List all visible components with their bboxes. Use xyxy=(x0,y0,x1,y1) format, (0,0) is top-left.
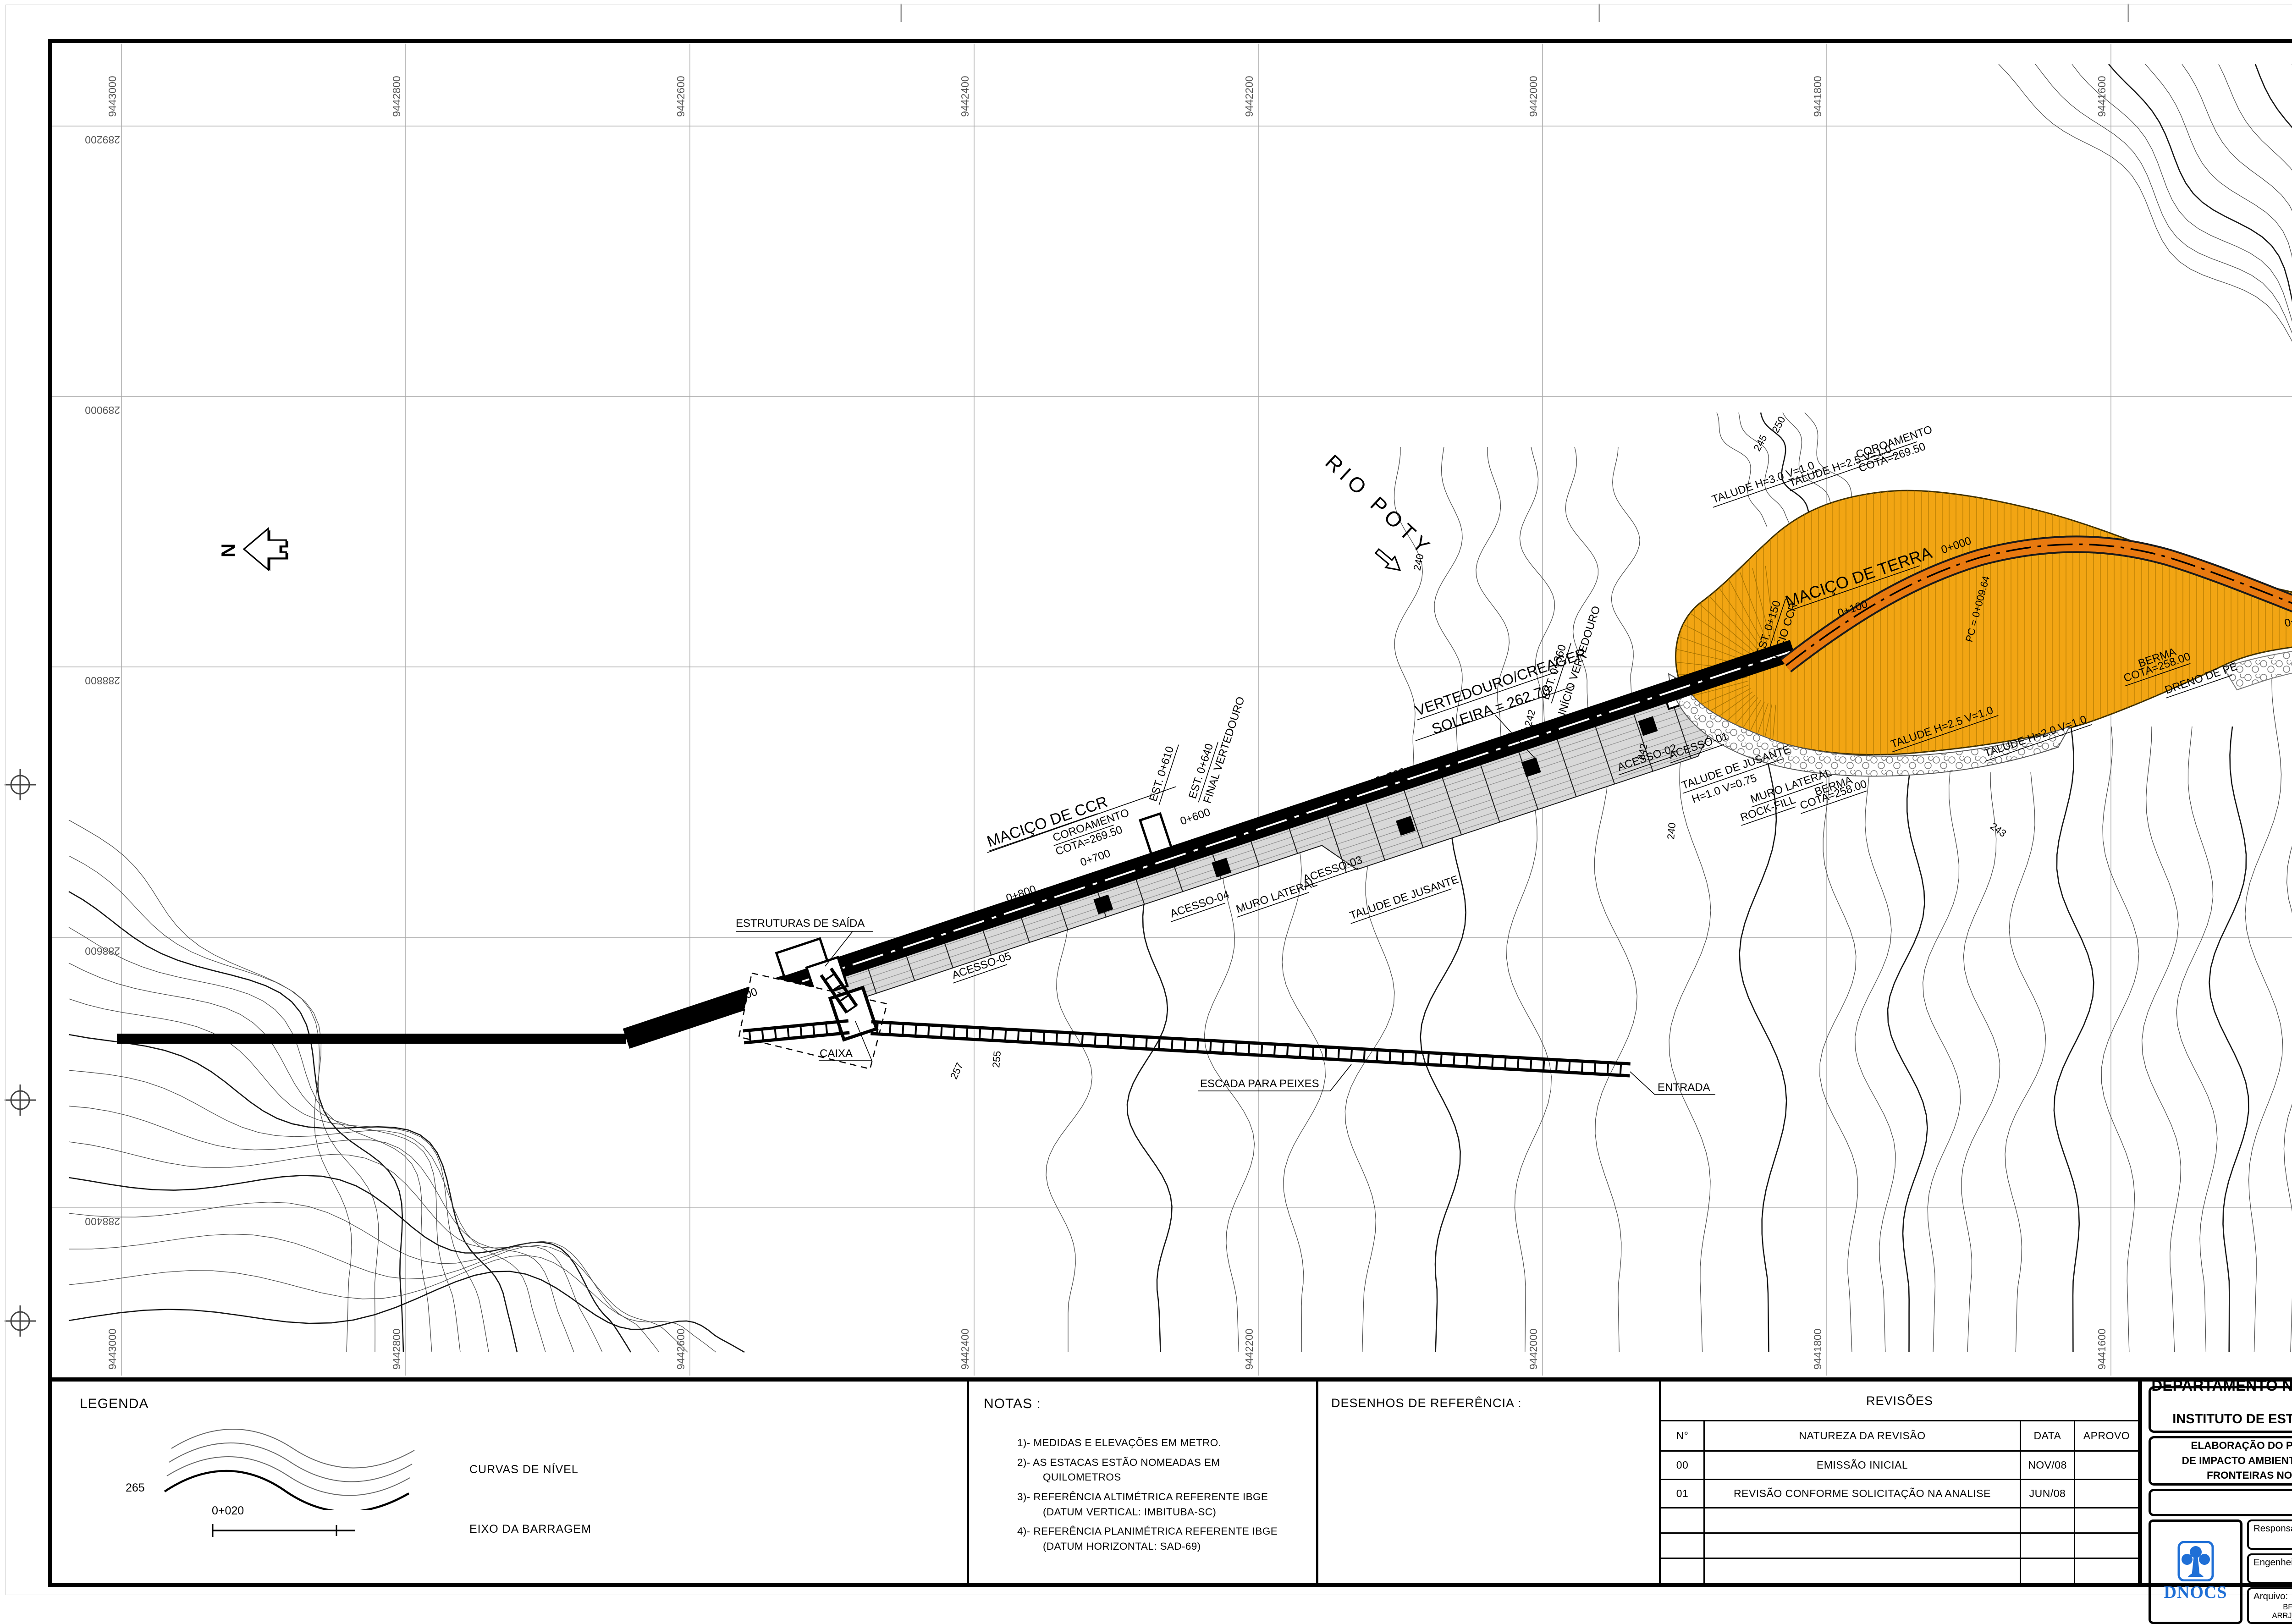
svg-text:ESCADA PARA PEIXES: ESCADA PARA PEIXES xyxy=(1200,1078,1319,1090)
responsible-field: Responsável Técnico: – xyxy=(2247,1519,2292,1550)
north-label: N xyxy=(217,544,239,557)
revision-cell xyxy=(1661,1507,1703,1532)
contour-line xyxy=(69,1070,545,1352)
map-label: 240 xyxy=(1411,553,1426,572)
contour-line xyxy=(1611,447,1640,704)
contour-line xyxy=(69,1272,744,1353)
map-label: ACESSO-03 xyxy=(1300,853,1364,887)
grid-northing-label: 9442800 xyxy=(391,1328,402,1370)
legend-axis-label: EIXO DA BARRAGEM xyxy=(469,1523,591,1536)
axis-symbol xyxy=(204,1521,396,1540)
revision-cell: REVISÃO CONFORME SOLICITAÇÃO NA ANALISE xyxy=(1703,1479,2020,1507)
svg-text:CAIXA: CAIXA xyxy=(820,1047,853,1060)
grid-easting-label: 288400 xyxy=(85,1216,120,1228)
contour-line xyxy=(2245,665,2283,1352)
dnocs-logo-box: DNOCS xyxy=(2149,1519,2242,1624)
contour-line xyxy=(1204,871,1254,1352)
left-fields: Responsável Técnico: – Engenheiro: – Arq… xyxy=(2247,1519,2292,1624)
map-label: ESCADA PARA PEIXES xyxy=(1200,1078,1319,1090)
grid-northing-label: 9442600 xyxy=(675,76,687,117)
contour-line xyxy=(2142,727,2181,1352)
revision-cell xyxy=(2020,1558,2074,1583)
title-block: DEPARTAMENTO NACIONAL DE OBRAS CONTRA AS… xyxy=(2138,1382,2292,1583)
contour-line xyxy=(1394,447,1422,772)
map-label: 255 xyxy=(990,1051,1003,1068)
notes-title: NOTAS : xyxy=(984,1396,1041,1412)
reference-drawings-panel: DESENHOS DE REFERÊNCIA : xyxy=(1316,1382,1659,1583)
flow-arrow-icon xyxy=(1372,545,1404,575)
contour-line xyxy=(1127,896,1172,1352)
contour-line xyxy=(2209,727,2249,1352)
drawing-sheet: { "legend": { "title": "LEGENDA", "conto… xyxy=(0,0,2292,1601)
contour-line xyxy=(1961,772,2000,1352)
contour-line xyxy=(69,856,379,1352)
legend-contour-label: CURVAS DE NÍVEL xyxy=(469,1463,579,1476)
revision-cell xyxy=(2074,1450,2138,1479)
grid-northing-label: 9441600 xyxy=(2096,1328,2108,1370)
contour-line xyxy=(69,927,432,1352)
dnocs-logo-icon xyxy=(2171,1541,2221,1581)
revisions-table: REVISÕES N° NATUREZA DA REVISÃO DATA APR… xyxy=(1659,1382,2138,1583)
grid-northing-label: 9442000 xyxy=(1527,76,1539,117)
axis-centerline xyxy=(752,652,1790,998)
note-item: 1)- MEDIDAS E ELEVAÇÕES EM METRO. xyxy=(1017,1436,1292,1451)
contour-line xyxy=(1282,847,1325,1352)
revision-cell xyxy=(2074,1479,2138,1507)
notes-panel: NOTAS : 1)- MEDIDAS E ELEVAÇÕES EM METRO… xyxy=(967,1382,1316,1583)
revision-cell xyxy=(2020,1507,2074,1532)
bottom-panel-row: LEGENDA 265 CURVAS DE NÍVEL 0+020 EIXO D… xyxy=(48,1377,2292,1587)
revision-cell xyxy=(1661,1532,1703,1558)
map-label: 240 xyxy=(1665,822,1678,840)
map-label: RIO POTY xyxy=(1321,450,1438,561)
legend-contour-value: 265 xyxy=(126,1481,145,1495)
note-item: 3)- REFERÊNCIA ALTIMÉTRICA REFERENTE IBG… xyxy=(1017,1490,1292,1519)
revision-cell xyxy=(2020,1532,2074,1558)
revision-cell: JUN/08 xyxy=(2020,1479,2074,1507)
svg-text:240: 240 xyxy=(1411,553,1426,572)
revisions-col-header: DATA xyxy=(2020,1420,2074,1450)
contour-symbol xyxy=(158,1418,442,1510)
grid-northing-label: 9442800 xyxy=(391,76,402,117)
contour-line xyxy=(2101,727,2139,1352)
leader-line xyxy=(1330,1064,1351,1091)
map-label: 0+600 xyxy=(1179,806,1212,827)
grid-northing-label: 9442200 xyxy=(1243,1328,1255,1370)
svg-text:RIO POTY: RIO POTY xyxy=(1321,450,1438,561)
svg-text:EST. 0+610: EST. 0+610 xyxy=(1147,745,1176,803)
grid-northing-label: 9442400 xyxy=(959,76,971,117)
map-label: 257 xyxy=(948,1061,965,1081)
svg-text:242: 242 xyxy=(1522,708,1538,727)
revisions-col-header: N° xyxy=(1661,1420,1703,1450)
contour-line xyxy=(69,1175,631,1352)
project-line: ELABORAÇÃO DO PROJETO EXECUTIVO E ADEQUA… xyxy=(2191,1438,2292,1453)
contour-line xyxy=(1046,920,1092,1352)
contour-line xyxy=(69,892,403,1352)
svg-text:ENTRADA: ENTRADA xyxy=(1658,1081,1710,1094)
contour-line xyxy=(2219,64,2292,544)
svg-text:257: 257 xyxy=(948,1061,965,1081)
svg-text:TALUDE DE JUSANTE: TALUDE DE JUSANTE xyxy=(1348,873,1460,922)
contour-line xyxy=(1820,772,1858,1352)
contour-line xyxy=(1855,772,1895,1352)
project-description-box: ELABORAÇÃO DO PROJETO EXECUTIVO E ADEQUA… xyxy=(2149,1436,2292,1486)
contour-line xyxy=(1669,726,1711,1352)
revisions-col-header: NATUREZA DA REVISÃO xyxy=(1703,1420,2020,1450)
map-label: ESTRUTURAS DE SAÍDA xyxy=(736,917,865,930)
revision-cell: NOV/08 xyxy=(2020,1450,2074,1479)
map-label: 242 xyxy=(1522,708,1538,727)
map-label: 243 xyxy=(1988,820,2008,840)
contour-line xyxy=(2109,64,2292,508)
engineer-field: Engenheiro: – xyxy=(2247,1553,2292,1584)
revision-cell xyxy=(2074,1558,2138,1583)
grid-northing-label: 9443000 xyxy=(106,76,118,117)
contour-line xyxy=(69,1202,659,1352)
grid-northing-label: 9443000 xyxy=(106,1328,118,1370)
svg-text:243: 243 xyxy=(1988,820,2008,840)
contour-line xyxy=(2176,727,2217,1352)
grid-easting-label: 289000 xyxy=(85,404,120,416)
map-label: 0+700 xyxy=(1079,847,1112,869)
svg-text:0+600: 0+600 xyxy=(1179,806,1212,827)
revision-cell xyxy=(1703,1558,2020,1583)
dnocs-logo-text: DNOCS xyxy=(2164,1582,2227,1602)
ccr-spillway-band xyxy=(749,647,1825,1032)
grid-northing-label: 9442400 xyxy=(959,1328,971,1370)
revision-cell xyxy=(1703,1507,2020,1532)
contour-line xyxy=(1888,772,1928,1352)
organization-name: DEPARTAMENTO NACIONAL DE OBRAS CONTRA AS… xyxy=(2151,1377,2292,1412)
revision-cell xyxy=(1703,1532,2020,1558)
grid-easting-label: 288600 xyxy=(85,945,120,957)
organization-box: DEPARTAMENTO NACIONAL DE OBRAS CONTRA AS… xyxy=(2149,1386,2292,1433)
project-line: FRONTEIRAS NO MUNICÍPIO DE CRATEÚS, NO E… xyxy=(2207,1468,2292,1483)
contour-line xyxy=(2255,64,2292,556)
contour-line xyxy=(69,1035,517,1352)
map-label: ENTRADA xyxy=(1658,1081,1710,1094)
legend-panel: LEGENDA 265 CURVAS DE NÍVEL 0+020 EIXO D… xyxy=(52,1382,967,1583)
project-line: DE IMPACTO AMBIENTAL E DE SUSTENTABILIDA… xyxy=(2182,1453,2292,1469)
contour-line xyxy=(69,1106,574,1352)
map-label: TALUDE DE JUSANTE xyxy=(1346,873,1460,924)
contour-line xyxy=(69,999,489,1352)
svg-text:ESTRUTURAS DE SAÍDA: ESTRUTURAS DE SAÍDA xyxy=(736,917,865,930)
revision-cell xyxy=(2074,1532,2138,1558)
legend-title: LEGENDA xyxy=(80,1396,149,1412)
site-plan-map: 9443000944300094428009442800944260094426… xyxy=(0,0,2292,1601)
drawing-title-box: PROJETO EXECUTIVO ARRANJO GERAL DAS OBRA… xyxy=(2149,1489,2292,1516)
revisions-col-header: APROVO xyxy=(2074,1420,2138,1450)
map-label: CAIXA xyxy=(820,1047,853,1060)
contour-line xyxy=(2035,64,2292,484)
dam-structures xyxy=(5,4,2292,1337)
grid-northing-label: 9442200 xyxy=(1243,76,1255,117)
contour-line xyxy=(2145,64,2292,520)
north-arrow-icon xyxy=(244,528,288,571)
revision-cell xyxy=(2074,1507,2138,1532)
grid-easting-label: 289200 xyxy=(85,134,120,146)
revision-cell: 01 xyxy=(1661,1479,1703,1507)
contour-line xyxy=(1594,750,1637,1352)
contour-line xyxy=(69,820,352,1352)
revisions-title: REVISÕES xyxy=(1661,1382,2138,1420)
leader-line xyxy=(1630,1072,1655,1095)
svg-text:0+700: 0+700 xyxy=(1079,847,1112,869)
contour-line xyxy=(2005,772,2046,1352)
note-item: 2)- AS ESTACAS ESTÃO NOMEADAS EM QUILOME… xyxy=(1017,1455,1292,1485)
revision-cell: EMISSÃO INICIAL xyxy=(1703,1450,2020,1479)
map-label: EST. 0+610 xyxy=(1146,741,1179,805)
grid-easting-label: 288800 xyxy=(85,675,120,687)
svg-text:255: 255 xyxy=(990,1051,1003,1068)
contour-line xyxy=(2054,727,2094,1352)
contour-line xyxy=(1999,64,2292,472)
notes-list: 1)- MEDIDAS E ELEVAÇÕES EM METRO. 2)- AS… xyxy=(1017,1436,1292,1558)
map-label: 250 xyxy=(1769,414,1787,435)
revision-cell xyxy=(1661,1558,1703,1583)
svg-text:250: 250 xyxy=(1769,414,1787,435)
contour-line xyxy=(2284,665,2292,1352)
grid-northing-label: 9441800 xyxy=(1812,1328,1824,1370)
grid-northing-label: 9441800 xyxy=(1812,76,1824,117)
revision-cell: 00 xyxy=(1661,1450,1703,1479)
svg-text:240: 240 xyxy=(1665,822,1678,840)
note-item: 4)- REFERÊNCIA PLANIMÉTRICA REFERENTE IB… xyxy=(1017,1524,1292,1554)
contour-line xyxy=(1717,413,1767,527)
contour-line xyxy=(2072,64,2292,496)
contour-line xyxy=(69,1234,688,1353)
contour-line xyxy=(1923,772,1961,1352)
legend-axis-station: 0+020 xyxy=(212,1504,244,1518)
reference-drawings-title: DESENHOS DE REFERÊNCIA : xyxy=(1331,1396,1522,1410)
file-field: Arquivo: BF-PE-00_00-ARRJ_GERAL.DWG xyxy=(2247,1587,2292,1624)
grid-northing-label: 9442000 xyxy=(1527,1328,1539,1370)
